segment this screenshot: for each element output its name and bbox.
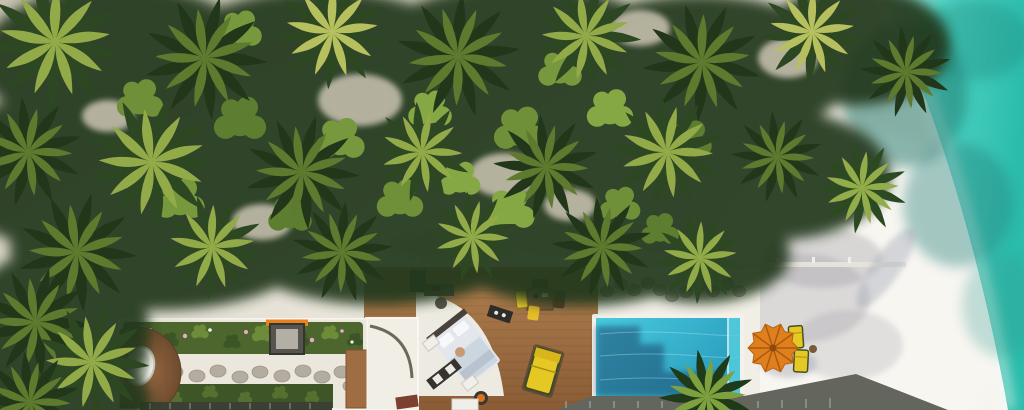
aerial-render: Top-down aerial rendering of a tropical … [0,0,1024,410]
stage: Top-down aerial rendering of a tropical … [0,0,1024,410]
deck-fence [140,402,332,410]
garden-bench [346,350,368,408]
outdoor-shower [266,316,308,354]
foyer [366,318,419,410]
vanity [452,399,478,410]
